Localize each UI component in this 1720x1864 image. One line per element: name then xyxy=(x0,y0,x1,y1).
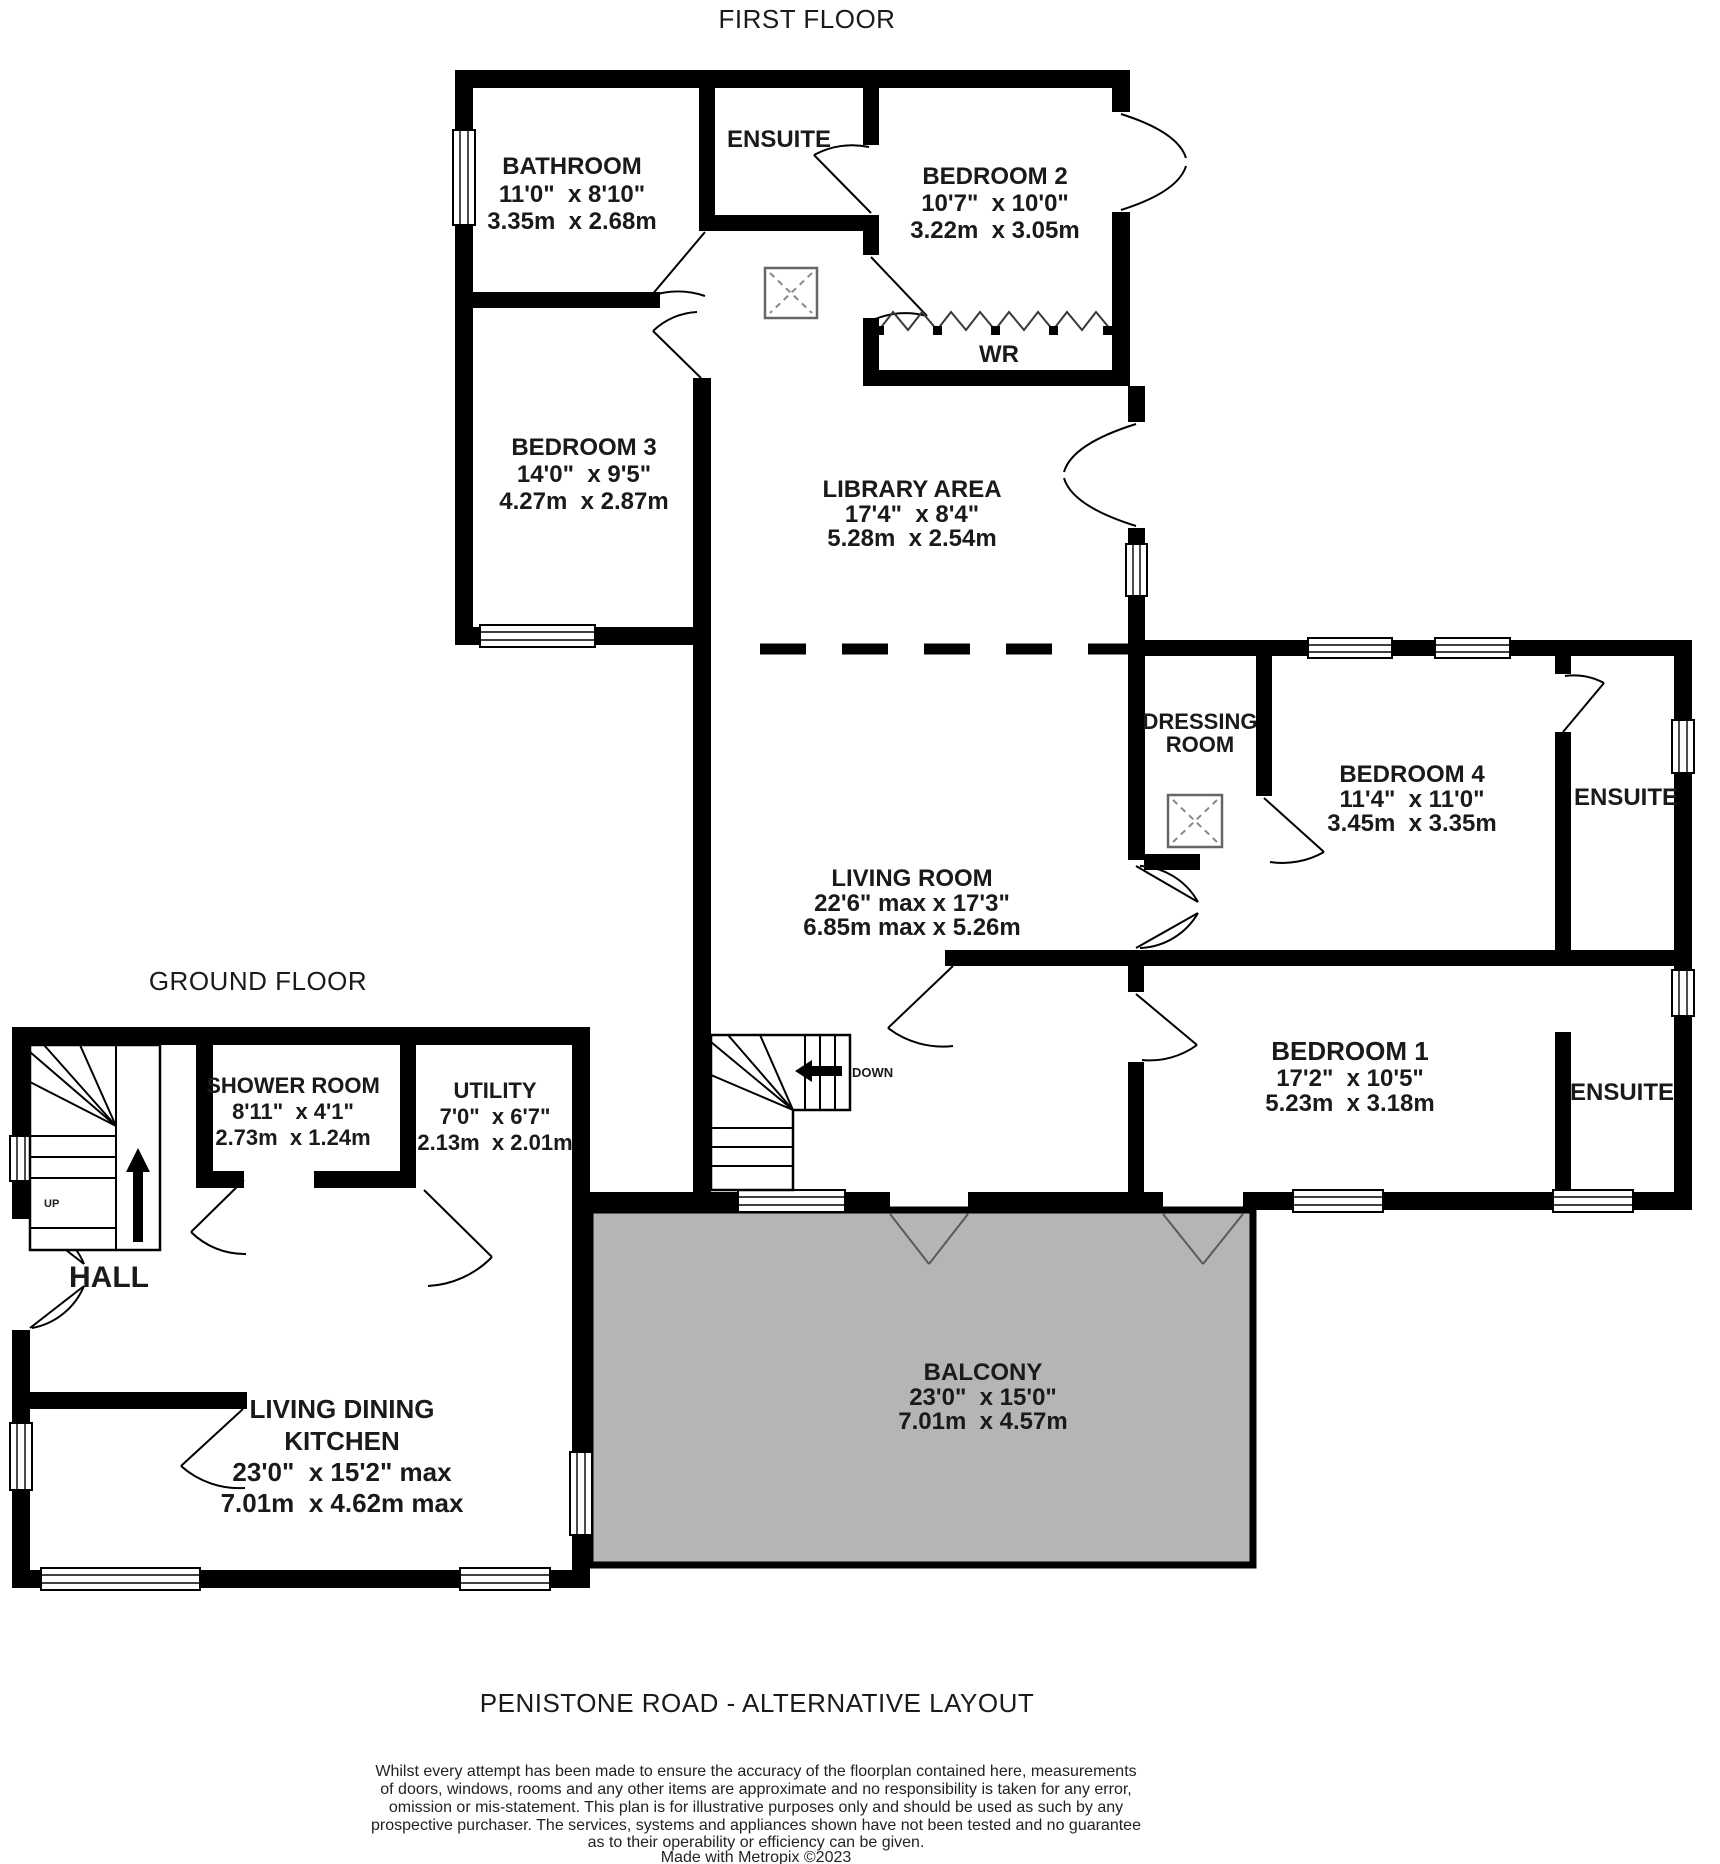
wardrobe-rail-zigzag-icon xyxy=(875,312,1112,335)
ensuite-bed1-window xyxy=(1672,970,1694,1016)
disclaimer: Whilst every attempt has been made to en… xyxy=(371,1763,1141,1864)
disclaimer-line-2: of doors, windows, rooms and any other i… xyxy=(380,1781,1131,1798)
bedroom1-dim-metric: 5.23m x 3.18m xyxy=(1265,1090,1434,1117)
utility-door-arc xyxy=(424,1190,492,1286)
balcony-label: BALCONY xyxy=(924,1359,1043,1386)
kitchen-label-line1: LIVING DINING xyxy=(250,1394,435,1424)
bathroom-dim-metric: 3.35m x 2.68m xyxy=(487,208,656,235)
credit-label: Made with Metropix ©2023 xyxy=(661,1849,852,1864)
wr-label: WR xyxy=(979,341,1019,368)
bedroom3-window xyxy=(480,625,595,647)
shower-room-dim-imperial: 8'11" x 4'1" xyxy=(232,1099,354,1124)
kitchen-dim-metric: 7.01m x 4.62m max xyxy=(221,1488,464,1518)
ensuite-top-door-arc xyxy=(814,145,871,213)
bedroom3-label: BEDROOM 3 xyxy=(511,434,656,461)
balcony-dim-metric: 7.01m x 4.57m xyxy=(898,1408,1067,1435)
library-dim-imperial: 17'4" x 8'4" xyxy=(845,501,979,528)
up-label: UP xyxy=(44,1198,59,1210)
ensuite-bed4-label: ENSUITE xyxy=(1574,784,1678,811)
bedroom3-dim-imperial: 14'0" x 9'5" xyxy=(517,461,651,488)
staircase-first-floor: DOWN xyxy=(711,1035,893,1190)
kitchen-right-window xyxy=(570,1452,592,1535)
kitchen-side-window xyxy=(10,1423,32,1490)
bedroom2-dim-metric: 3.22m x 3.05m xyxy=(910,217,1079,244)
floorplan-page: FIRST FLOOR xyxy=(0,0,1720,1864)
bedroom3-door-arc xyxy=(653,312,701,378)
staircase-ground-floor: UP xyxy=(30,1045,160,1250)
bedroom1-label: BEDROOM 1 xyxy=(1271,1036,1428,1066)
kitchen-label-line2: KITCHEN xyxy=(284,1426,400,1456)
library-dim-metric: 5.28m x 2.54m xyxy=(827,525,996,552)
dressing-room-label-line1: DRESSING xyxy=(1143,709,1258,734)
bathroom-door-arc xyxy=(651,232,705,296)
utility-label: UTILITY xyxy=(453,1078,536,1103)
lobby-double-door-arcs xyxy=(1136,866,1198,948)
shower-room-label: SHOWER ROOM xyxy=(206,1073,380,1098)
bedroom1-window-2 xyxy=(1553,1190,1633,1212)
landing-door-arc xyxy=(888,966,953,1047)
skylight-icon-landing xyxy=(765,268,817,318)
utility-dim-metric: 2.13m x 2.01m xyxy=(417,1130,572,1155)
kitchen-bottom-window-1 xyxy=(41,1568,200,1590)
dressing-to-bedroom4-door-arc xyxy=(1264,798,1324,863)
living-room-dim-metric: 6.85m max x 5.26m xyxy=(803,914,1021,941)
disclaimer-line-4: prospective purchaser. The services, sys… xyxy=(371,1817,1141,1834)
bedroom3-dim-metric: 4.27m x 2.87m xyxy=(499,488,668,515)
shower-room-dim-metric: 2.73m x 1.24m xyxy=(215,1125,370,1150)
hall-label: HALL xyxy=(69,1261,149,1294)
floorplan-drawing: FIRST FLOOR xyxy=(0,0,1720,1864)
living-room-window xyxy=(738,1190,845,1212)
utility-dim-imperial: 7'0" x 6'7" xyxy=(440,1104,551,1129)
library-label: LIBRARY AREA xyxy=(822,476,1001,503)
bedroom4-dim-metric: 3.45m x 3.35m xyxy=(1327,810,1496,837)
stairs-window xyxy=(10,1136,32,1181)
bathroom-window xyxy=(453,130,475,225)
balcony-dim-imperial: 23'0" x 15'0" xyxy=(909,1384,1057,1411)
ensuite-bed1-label: ENSUITE xyxy=(1570,1079,1674,1106)
bedroom2-dim-imperial: 10'7" x 10'0" xyxy=(921,190,1069,217)
ground-floor-label: GROUND FLOOR xyxy=(149,966,367,996)
dressing-room-label-line2: ROOM xyxy=(1166,732,1234,757)
bedroom2-outer-doors xyxy=(1121,114,1186,210)
bedroom4-label: BEDROOM 4 xyxy=(1339,761,1485,788)
ensuite-bed4-window xyxy=(1672,720,1694,773)
library-window xyxy=(1126,544,1147,596)
library-french-doors xyxy=(1064,424,1136,526)
bedroom4-window-2 xyxy=(1435,638,1510,658)
bathroom-dim-imperial: 11'0" x 8'10" xyxy=(499,181,645,208)
living-room-label: LIVING ROOM xyxy=(831,865,992,892)
bedroom1-dim-imperial: 17'2" x 10'5" xyxy=(1276,1065,1424,1092)
bedroom4-window-1 xyxy=(1308,638,1392,658)
bathroom-label: BATHROOM xyxy=(502,153,642,180)
bedroom2-door-arc xyxy=(871,257,927,320)
first-floor-label: FIRST FLOOR xyxy=(719,4,896,34)
kitchen-bottom-window-2 xyxy=(460,1568,550,1590)
kitchen-dim-imperial: 23'0" x 15'2" max xyxy=(232,1457,452,1487)
down-label: DOWN xyxy=(852,1065,893,1080)
bedroom2-label: BEDROOM 2 xyxy=(922,163,1067,190)
disclaimer-line-3: omission or mis-statement. This plan is … xyxy=(389,1799,1123,1816)
skylight-icon-dressing xyxy=(1168,795,1222,847)
bedroom1-window-1 xyxy=(1293,1190,1383,1212)
bedroom4-dim-imperial: 11'4" x 11'0" xyxy=(1340,786,1485,813)
bedroom1-door-arc xyxy=(1136,994,1197,1060)
plan-title: PENISTONE ROAD - ALTERNATIVE LAYOUT xyxy=(480,1688,1034,1718)
shower-room-door-arc xyxy=(191,1180,246,1254)
ensuite-top-label: ENSUITE xyxy=(727,126,831,153)
ensuite-bed4-door-arc xyxy=(1563,675,1604,732)
disclaimer-line-1: Whilst every attempt has been made to en… xyxy=(375,1763,1136,1780)
living-room-dim-imperial: 22'6" max x 17'3" xyxy=(814,890,1010,917)
